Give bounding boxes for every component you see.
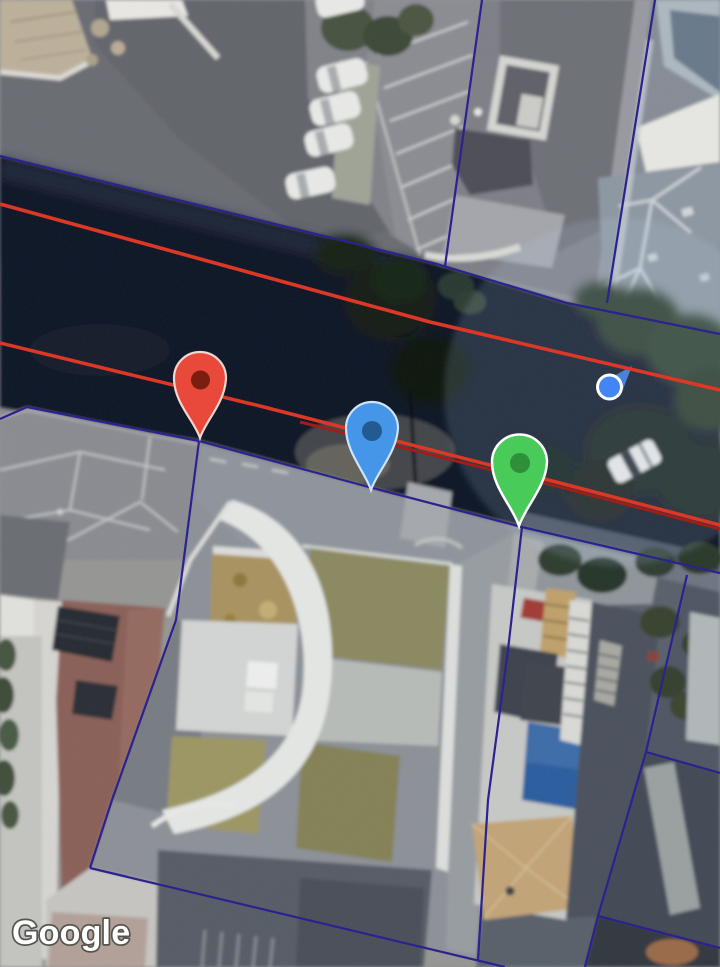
svg-text:Google: Google xyxy=(12,914,130,952)
